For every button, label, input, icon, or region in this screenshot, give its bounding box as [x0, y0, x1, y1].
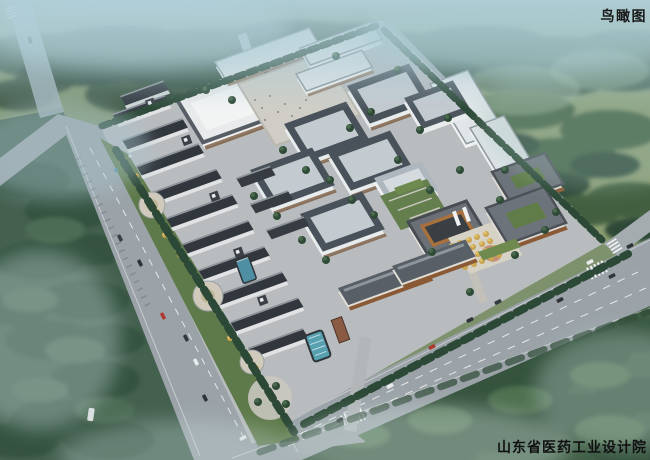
credit-label: 山东省医药工业设计院 — [497, 439, 647, 455]
view-title-label: 鸟瞰图 — [601, 8, 648, 24]
aerial-render: 鸟瞰图 山东省医药工业设计院 — [0, 0, 650, 460]
